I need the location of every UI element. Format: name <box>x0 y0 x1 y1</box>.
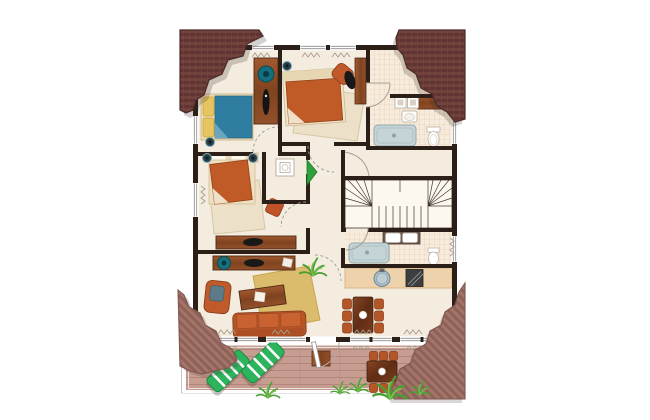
pillow <box>203 118 214 137</box>
desk <box>355 58 366 104</box>
toilet <box>427 127 440 147</box>
faucet <box>380 269 385 273</box>
window-top-bedroom2-a <box>300 45 326 51</box>
small-device <box>282 258 292 268</box>
window-bottom-kitchen-a <box>350 337 392 343</box>
kitchen-counter <box>345 268 452 288</box>
storage-closet-fixtures <box>276 159 294 176</box>
washbasin <box>386 233 401 243</box>
floor-plan-image <box>0 0 650 420</box>
mirror <box>263 89 270 115</box>
desk-chair <box>244 259 264 267</box>
staircase <box>345 180 452 228</box>
window-left-bedroom1 <box>193 116 199 144</box>
window-bottom-living-b <box>266 337 306 343</box>
dining-set <box>343 297 384 333</box>
window-left-bedroom3 <box>193 183 199 217</box>
window-top-bedroom2-b <box>330 45 356 51</box>
toilet <box>428 248 439 265</box>
floor-plan-canvas <box>0 0 650 420</box>
recliner-cushion <box>209 285 224 301</box>
washbasin <box>403 233 418 243</box>
washing-machine-icon <box>276 159 294 176</box>
